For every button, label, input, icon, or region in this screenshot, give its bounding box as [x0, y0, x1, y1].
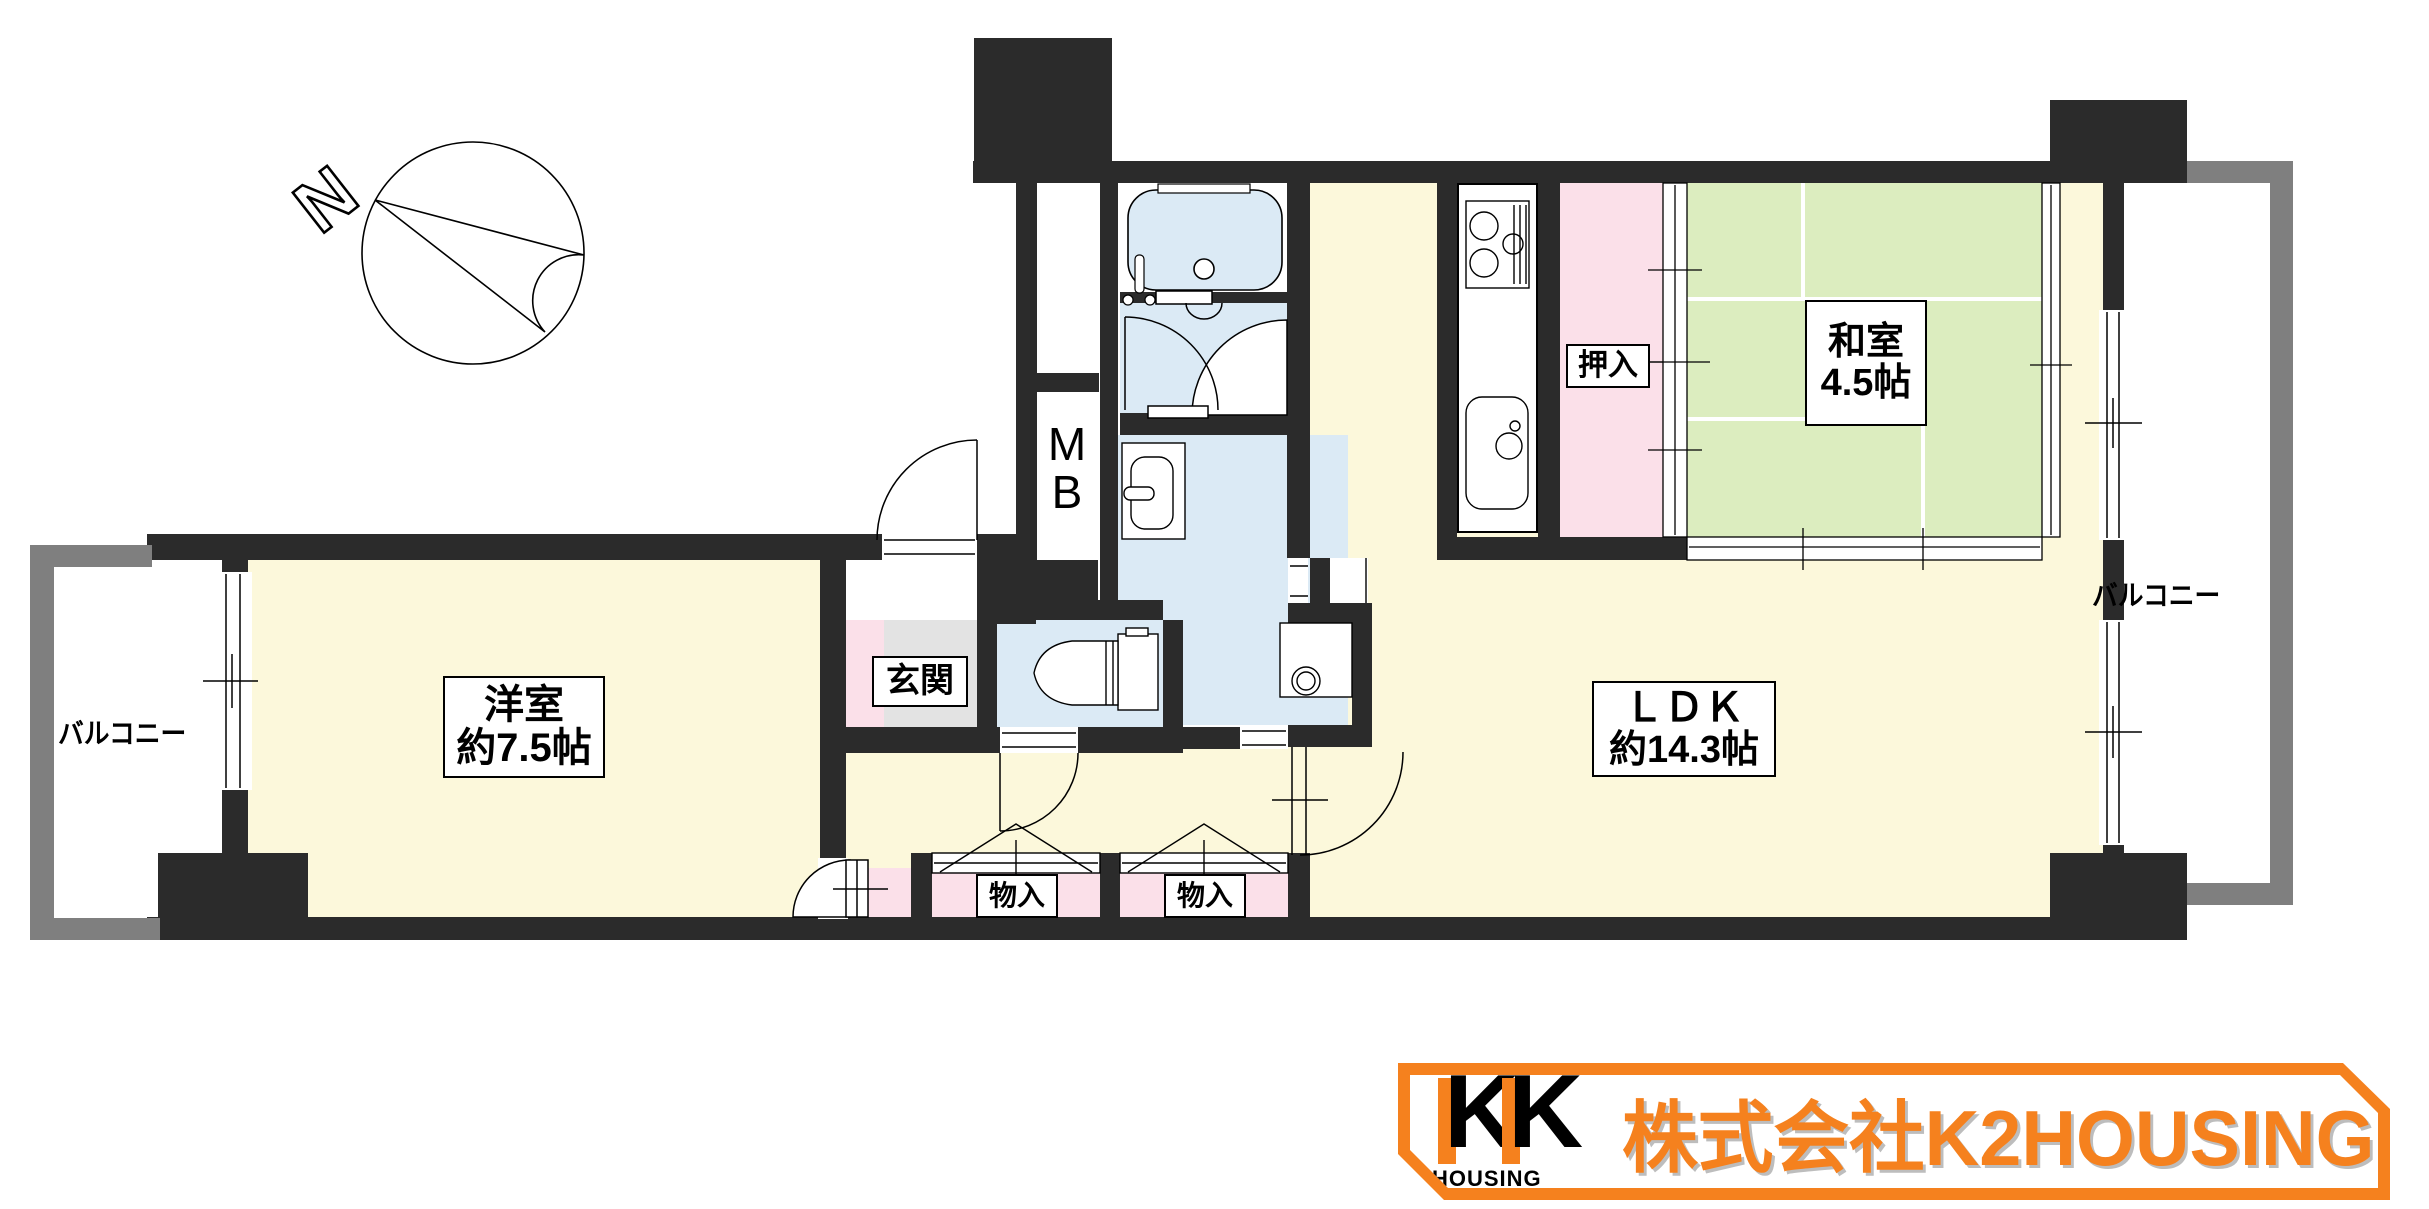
- kk-mark-icon: K K HOUSING: [1432, 1076, 1612, 1188]
- western-room-size: 約7.5帖: [456, 727, 592, 770]
- room-label-oshiire: 押入: [1566, 344, 1650, 388]
- entrance-name: 玄関: [886, 663, 954, 700]
- storage-right-name: 物入: [1177, 881, 1233, 911]
- kitchen-sink: [1466, 397, 1528, 509]
- compass-icon: N: [279, 142, 584, 364]
- storage-left-name: 物入: [989, 881, 1045, 911]
- balcony-left-label: バルコニー: [58, 712, 186, 752]
- room-label-entrance: 玄関: [872, 656, 968, 707]
- washbasin: [1122, 443, 1185, 539]
- room-label-ldk: ＬＤＫ 約14.3帖: [1592, 681, 1776, 777]
- washing-machine: [1280, 623, 1352, 697]
- kitchen-stove: [1466, 201, 1529, 288]
- washitsu-name: 和室: [1828, 322, 1904, 363]
- western-room-door: [793, 858, 888, 919]
- floor-plan-canvas: N: [0, 0, 2429, 1209]
- toilet-door: [1000, 727, 1078, 831]
- compass-north-label: N: [279, 150, 372, 248]
- room-label-storage-left: 物入: [976, 874, 1058, 918]
- lineart-overlay: N: [0, 0, 2429, 1209]
- bathtub: [1123, 184, 1282, 305]
- window-right-lower: [2085, 620, 2142, 845]
- meter-box-line1: M: [1036, 420, 1098, 468]
- washitsu-size: 4.5帖: [1821, 363, 1912, 404]
- ldk-name: ＬＤＫ: [1624, 687, 1744, 730]
- ldk-door: [1272, 747, 1403, 855]
- room-label-storage-right: 物入: [1164, 874, 1246, 918]
- toilet-fixture: [1034, 628, 1158, 710]
- front-door: [877, 440, 977, 560]
- logo-inner: K K HOUSING 株式会社K2HOUSING: [1410, 1075, 2378, 1188]
- balcony-right-label: バルコニー: [2092, 574, 2220, 614]
- kk-letter-right: K: [1508, 1060, 1583, 1164]
- room-label-washitsu: 和室 4.5帖: [1805, 300, 1927, 426]
- window-western-left: [203, 572, 258, 790]
- logo-housing-text: HOUSING: [1432, 1166, 1612, 1192]
- meter-box-label: M B: [1036, 420, 1098, 517]
- sliding-track-washitsu-right: [2030, 183, 2072, 537]
- company-name: 株式会社K2HOUSING: [1622, 1076, 2374, 1188]
- sliding-track-washitsu-bottom: [1687, 528, 2042, 570]
- oshiire-name: 押入: [1578, 350, 1638, 382]
- washroom-doors: [1125, 291, 1287, 418]
- room-label-western: 洋室 約7.5帖: [443, 676, 605, 778]
- company-logo: K K HOUSING 株式会社K2HOUSING: [1398, 1063, 2390, 1200]
- sliding-track-oshiire: [1643, 183, 1710, 537]
- meter-box-line2: B: [1036, 468, 1098, 516]
- western-room-name: 洋室: [484, 684, 564, 727]
- window-right-upper: [2085, 310, 2142, 540]
- ldk-size: 約14.3帖: [1609, 730, 1759, 771]
